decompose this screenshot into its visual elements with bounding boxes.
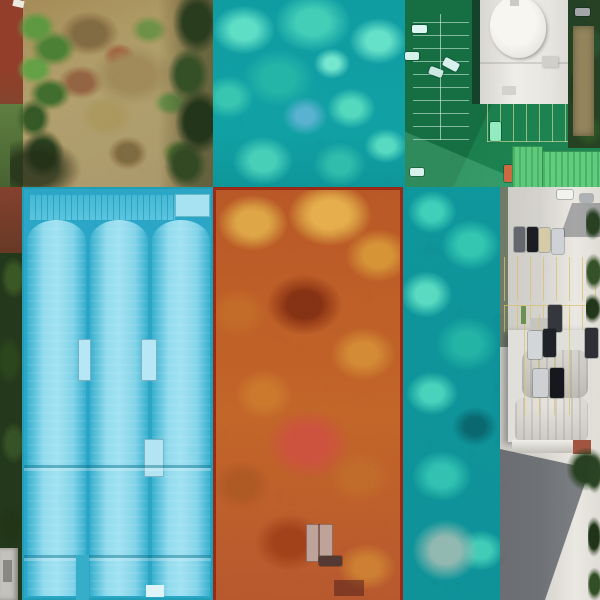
tree-strip: [588, 442, 600, 600]
parked-car: [580, 194, 593, 202]
parked-car: [575, 8, 590, 16]
roof-seam: [24, 555, 211, 558]
right-parking-strip: [500, 187, 600, 600]
grass-strip: [521, 306, 526, 324]
barrel-vault-bay: [90, 220, 148, 596]
parcel-scrub-field: [0, 0, 213, 187]
roof-notch: [510, 0, 519, 6]
clerestory-roof-strip: [29, 195, 175, 220]
dry-grass-patch: [573, 26, 594, 136]
yard-structure: [334, 580, 364, 596]
tree-row: [158, 0, 213, 187]
rooftop-unit: [542, 56, 558, 67]
left-tree-strip: [0, 187, 23, 600]
roof-vent-slot: [78, 339, 91, 381]
gable-end: [512, 440, 574, 453]
aerial-annotation-canvas: [0, 0, 600, 600]
parcel-forest-teal-top[interactable]: [213, 0, 405, 187]
parked-car: [412, 25, 427, 33]
parked-car: [405, 52, 419, 60]
skylight-panel: [175, 194, 210, 217]
small-structure: [0, 548, 18, 600]
parking-stall-lines: [504, 257, 596, 301]
parked-car: [527, 227, 538, 252]
roof-seam: [24, 465, 211, 468]
rooftop-unit: [144, 439, 164, 477]
parcel-forest-teal-right[interactable]: [403, 187, 500, 600]
parked-car: [548, 305, 562, 332]
white-tower-building: [480, 0, 568, 104]
parked-car: [550, 368, 564, 398]
parked-car: [319, 556, 342, 566]
parked-car: [557, 190, 573, 199]
parked-car: [543, 329, 556, 357]
oval-roof: [485, 0, 551, 62]
green-metal-roof-shed: [542, 151, 600, 188]
parked-car: [528, 331, 542, 359]
parked-car: [552, 229, 564, 254]
parcel-warehouse-blue[interactable]: [22, 187, 213, 600]
roof-marking: [146, 585, 164, 597]
barrel-vault-bay: [27, 220, 86, 596]
rooftop-unit: [502, 86, 516, 95]
parked-car: [514, 227, 525, 252]
tree-strip: [586, 205, 600, 327]
parked-car: [585, 328, 598, 358]
parked-car: [539, 228, 550, 252]
parcel-forest-orange[interactable]: [213, 187, 403, 600]
parked-car: [410, 168, 424, 176]
parked-car: [490, 122, 501, 141]
green-metal-roof-shed: [512, 146, 543, 188]
roof-vent-slot: [141, 339, 157, 381]
structure-detail: [3, 560, 12, 582]
barrel-vault-bay: [152, 220, 210, 596]
roof-vent-slot: [76, 555, 89, 600]
parked-car: [533, 369, 548, 397]
tree-shadow: [10, 128, 90, 187]
tree-strip: [568, 0, 600, 148]
red-dirt-patch: [0, 187, 23, 253]
